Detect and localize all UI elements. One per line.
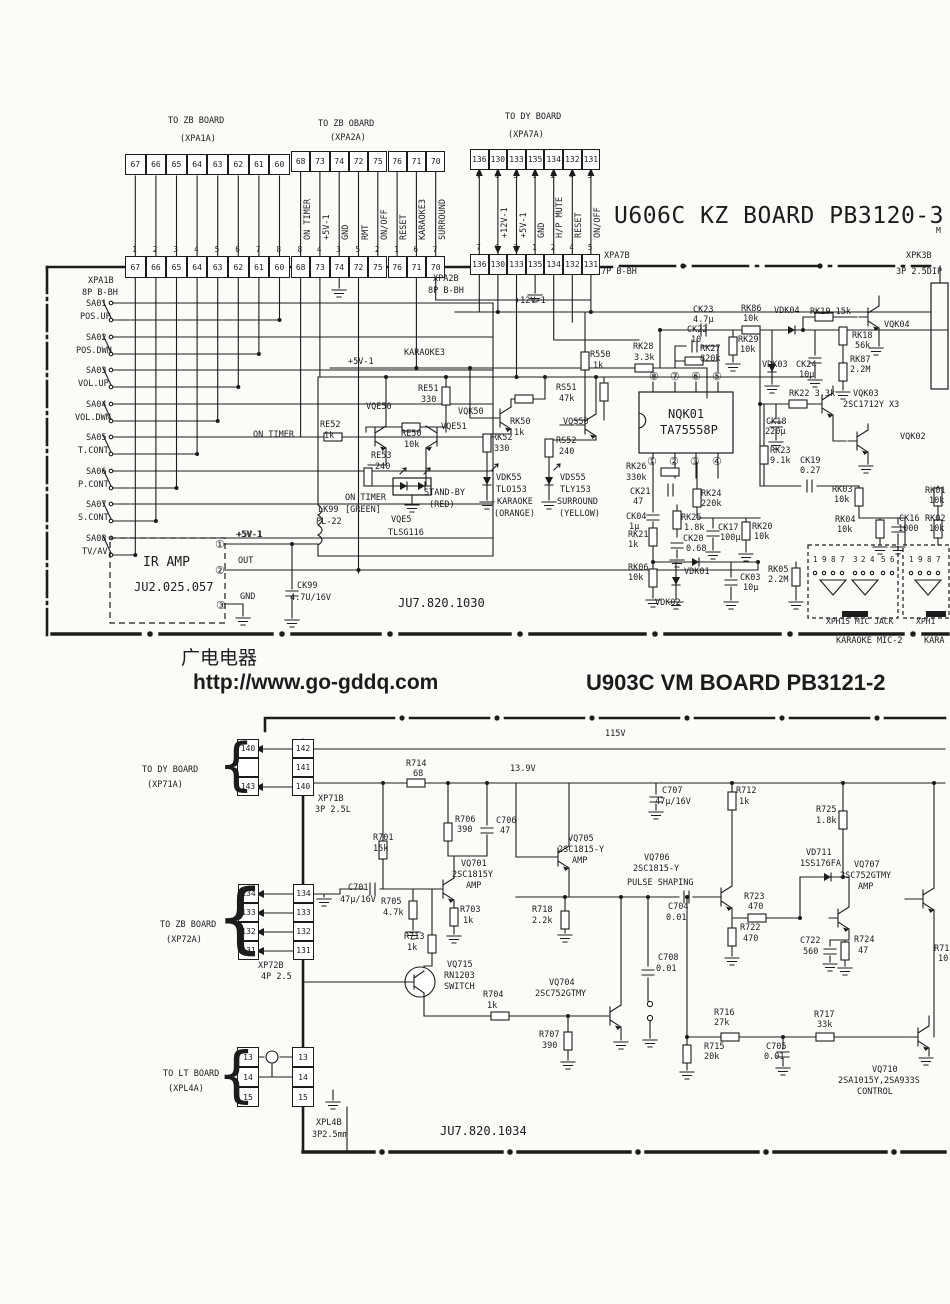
schematic-label: VDK02 — [655, 599, 681, 608]
schematic-label: RK06 — [628, 564, 648, 573]
schematic-label: TO DY BOARD — [142, 766, 198, 775]
schematic-label: 68 — [413, 770, 423, 779]
schematic-label: SA06 — [86, 468, 106, 477]
schematic-label: RS52 — [556, 437, 576, 446]
schematic-label: VDK04 — [774, 307, 800, 316]
connector-pin-cell: 64 — [187, 256, 208, 278]
schematic-label: ON/OFF — [594, 207, 603, 238]
connector-pin-number: 7 — [476, 244, 481, 252]
connector-pin-cell: 132 — [563, 254, 582, 275]
schematic-label: SA04 — [86, 401, 106, 410]
schematic-label: VQE51 — [441, 423, 467, 432]
schematic-label: 1.8k — [816, 817, 836, 826]
schematic-label: R704 — [483, 991, 503, 1000]
connector-pin-number: 7 — [256, 246, 261, 254]
schematic-label: VOL.UP — [78, 380, 109, 389]
schematic-label: 9.1k — [770, 457, 790, 466]
connector-pin-cell: 63 — [207, 154, 228, 175]
connector-pin-cell: 60 — [269, 154, 290, 175]
connector-pin-cell: 66 — [146, 154, 167, 175]
schematic-label: 2SC1712Y X3 — [843, 401, 899, 410]
connector-pin-cell: 15 — [292, 1087, 314, 1107]
schematic-label: ④ — [712, 456, 722, 468]
schematic-label: 47μ/16V — [655, 798, 691, 807]
schematic-label: VQ707 — [854, 861, 880, 870]
schematic-label: R714 — [406, 760, 426, 769]
schematic-label: 10μ — [799, 371, 814, 380]
schematic-label: RK23 — [770, 447, 790, 456]
schematic-label: 8 — [927, 556, 932, 564]
connector-pin-number: 6 — [495, 172, 500, 180]
schematic-label: CK04 — [626, 513, 646, 522]
schematic-label: 10k — [837, 526, 852, 535]
schematic-label: VQE5 — [391, 516, 411, 525]
schematic-label: 4.7U/16V — [290, 594, 331, 603]
schematic-label: JU2.025.057 — [134, 581, 213, 594]
schematic-label: 390 — [542, 1042, 557, 1051]
schematic-label: 3.3k — [634, 354, 654, 363]
schematic-label: 470 — [743, 935, 758, 944]
connector-pin-cell: 60 — [269, 256, 290, 278]
connector-pin-cell: 71 — [407, 151, 426, 172]
schematic-label: CK17 — [718, 524, 738, 533]
schematic-label: XPH1 — [916, 618, 935, 626]
connector-pin-number: 1 — [394, 246, 399, 254]
schematic-label: 330 — [421, 396, 436, 405]
connector-pin-number: 2 — [375, 246, 380, 254]
schematic-label: RE52 — [320, 421, 340, 430]
schematic-label: RK26 — [626, 463, 646, 472]
schematic-label: XPH15 MIC JACK — [826, 618, 893, 626]
schematic-label: VQ701 — [461, 860, 487, 869]
schematic-label: 7P B-BH — [601, 268, 637, 277]
schematic-label: VDS55 — [560, 474, 586, 483]
connector-pin-number: 5 — [215, 246, 220, 254]
connector-pin-cell: 72 — [349, 256, 368, 278]
connector-pin-cell: 131 — [582, 149, 601, 170]
schematic-label: R71 — [934, 945, 949, 954]
schematic-label: (XPA7A) — [508, 131, 544, 140]
schematic-label: RK19 15k — [810, 308, 851, 317]
schematic-label: VDK55 — [496, 474, 522, 483]
schematic-label: 7 — [840, 556, 845, 564]
schematic-label: GND — [538, 223, 547, 238]
schematic-label: CK21 — [630, 488, 650, 497]
schematic-label: R715 — [704, 1043, 724, 1052]
connector-pin-number: 2 — [551, 244, 556, 252]
schematic-label: GND — [342, 225, 351, 240]
schematic-label: RK01 — [925, 487, 945, 496]
schematic-label: 220k — [701, 500, 721, 509]
schematic-label: 220μ — [765, 428, 785, 437]
schematic-label: R725 — [816, 806, 836, 815]
schematic-wires — [0, 0, 950, 1304]
schematic-label: ON TIMER — [345, 494, 386, 503]
schematic-label: (XPA2A) — [330, 134, 366, 143]
schematic-label: 47 — [500, 827, 510, 836]
schematic-label: 470 — [748, 903, 763, 912]
schematic-label: 0.27 — [800, 467, 820, 476]
schematic-label: RS51 — [556, 384, 576, 393]
schematic-label: 15k — [373, 845, 388, 854]
connector-pin-cell: 72 — [349, 151, 368, 172]
schematic-label: R550 — [590, 351, 610, 360]
schematic-label: 1k — [628, 541, 638, 550]
schematic-label: 2.2M — [768, 576, 788, 585]
connector-pin-cell: 64 — [187, 154, 208, 175]
schematic-label: 8P B-BH — [428, 287, 464, 296]
schematic-label: TO DY BOARD — [505, 113, 561, 122]
connector-pin-number: 8 — [298, 246, 303, 254]
schematic-label: 240 — [375, 463, 390, 472]
schematic-label: 7 — [936, 556, 941, 564]
schematic-label: LK99 — [318, 506, 338, 515]
schematic-label: R716 — [714, 1009, 734, 1018]
schematic-label: VQE50 — [366, 403, 392, 412]
schematic-label: 100μ — [720, 534, 740, 543]
schematic-label: C701 — [348, 884, 368, 893]
schematic-label: RK52 — [492, 434, 512, 443]
schematic-label: 330k — [626, 474, 646, 483]
schematic-label: C708 — [658, 954, 678, 963]
schematic-label: 10 — [938, 955, 948, 964]
schematic-label: ⑧ — [649, 371, 659, 383]
schematic-label: S.CONT — [78, 514, 109, 523]
connector-pin-cell: 74 — [330, 151, 349, 172]
schematic-label: VDK03 — [762, 361, 788, 370]
schematic-label: 1k — [593, 362, 603, 371]
schematic-label: SURROUND — [557, 498, 598, 507]
schematic-label: R723 — [744, 893, 764, 902]
connector-pin-number: 1 — [132, 246, 137, 254]
connector-pin-cell: 134 — [544, 254, 563, 275]
schematic-label: ③ — [216, 600, 226, 612]
connector-pin-cell: 68 — [291, 256, 310, 278]
schematic-label: 10k — [929, 525, 944, 534]
schematic-label: RK86 — [741, 305, 761, 314]
schematic-label: (XPL4A) — [168, 1085, 204, 1094]
connector-pin-cell: 63 — [207, 256, 228, 278]
schematic-label: TLO153 — [496, 486, 527, 495]
schematic-label: RK02 — [925, 515, 945, 524]
schematic-label: TO LT BOARD — [163, 1070, 219, 1079]
connector-pin-cell: 62 — [228, 256, 249, 278]
schematic-label: R718 — [532, 906, 552, 915]
schematic-label: RK04 — [835, 516, 855, 525]
schematic-label: +5V-1 — [520, 212, 529, 238]
schematic-label: 10k — [743, 315, 758, 324]
connector-pin-cell: 73 — [310, 151, 329, 172]
schematic-label: XPL4B — [316, 1119, 342, 1128]
schematic-label: GND — [240, 593, 255, 602]
schematic-label: 1k — [739, 798, 749, 807]
connector-pin-number: 5 — [588, 172, 593, 180]
schematic-label: KARAOKE3 — [419, 199, 428, 240]
schematic-label: RK20 — [752, 523, 772, 532]
connector-pin-cell: 67 — [125, 256, 146, 278]
schematic-label: TA75558P — [660, 424, 718, 437]
schematic-label: NQK01 — [668, 408, 704, 421]
connector-pin-number: 3 — [336, 246, 341, 254]
connector-pin-cell: 134 — [544, 149, 563, 170]
connector-pin-cell: 141 — [292, 758, 314, 777]
schematic-label: VD711 — [806, 849, 832, 858]
schematic-label: CK24 — [796, 361, 816, 370]
schematic-label: +5V-1 — [323, 214, 332, 240]
connector-pin-cell: 134 — [293, 884, 314, 903]
schematic-label: ① — [647, 456, 657, 468]
schematic-label: 330 — [494, 445, 509, 454]
schematic-label: TO ZB BOARD — [160, 921, 216, 930]
schematic-label: 47 — [858, 947, 868, 956]
connector-pin-cell: 13 — [292, 1047, 314, 1067]
schematic-label: R701 — [373, 834, 393, 843]
schematic-label: 1 — [813, 556, 818, 564]
schematic-label: 9 — [822, 556, 827, 564]
schematic-label: AMP — [572, 857, 587, 866]
schematic-label: SWITCH — [444, 983, 475, 992]
connector-pin-number: 2 — [153, 246, 158, 254]
schematic-label: ② — [215, 565, 225, 577]
schematic-label: 8P B-BH — [82, 289, 118, 298]
connector-pin-cell: 67 — [125, 154, 146, 175]
schematic-label: TO ZB BOARD — [168, 117, 224, 126]
schematic-label: 33k — [817, 1021, 832, 1030]
schematic-label: (XPA1A) — [180, 135, 216, 144]
schematic-label: SA03 — [86, 367, 106, 376]
schematic-label: R703 — [460, 906, 480, 915]
schematic-label: CK19 — [800, 457, 820, 466]
connector-pin-cell: 140 — [292, 777, 314, 796]
schematic-label: 2 — [861, 556, 866, 564]
schematic-label: 8 — [831, 556, 836, 564]
schematic-label: XPA1B — [88, 277, 114, 286]
schematic-label: P.CONT — [78, 481, 109, 490]
connector-pin-number: 1 — [532, 172, 537, 180]
schematic-label: { — [217, 879, 263, 960]
schematic-label: ⑦ — [670, 371, 680, 383]
schematic-label: H/P MUTE — [556, 197, 565, 238]
connector-pin-cell: 70 — [426, 151, 445, 172]
schematic-label: 5 — [881, 556, 886, 564]
schematic-label: VQ704 — [549, 979, 575, 988]
schematic-label: XPA2B — [433, 275, 459, 284]
connector-pin-cell: 136 — [470, 254, 489, 275]
schematic-label: PULSE SHAPING — [627, 879, 694, 888]
schematic-label: KARA — [924, 637, 944, 646]
connector-pin-cell: 71 — [407, 256, 426, 278]
schematic-label: VOL.DWN — [75, 414, 111, 423]
schematic-label: CK22 — [687, 326, 707, 335]
schematic-label: 2SC1815Y — [452, 871, 493, 880]
connector-pin-cell: 130 — [489, 149, 508, 170]
schematic-label: 10k — [628, 574, 643, 583]
schematic-label: 3P 2.5DIP — [896, 268, 942, 277]
connector-pin-number: 6 — [235, 246, 240, 254]
schematic-label: 3P 2.5L — [315, 806, 351, 815]
schematic-label: 1k — [324, 432, 334, 441]
schematic-label: VQ706 — [644, 854, 670, 863]
schematic-label: (XP71A) — [147, 781, 183, 790]
schematic-label: XP71B — [318, 795, 344, 804]
schematic-label: ③ — [690, 456, 700, 468]
connector-pin-number: 4 — [569, 244, 574, 252]
schematic-label: 3P2.5mm — [312, 1131, 348, 1140]
schematic-label: RK24 — [701, 490, 721, 499]
schematic-label: 4.7μ — [693, 316, 713, 325]
connector-pin-number: 2 — [551, 172, 556, 180]
schematic-label: RN1203 — [444, 972, 475, 981]
schematic-label: XPK3B — [906, 252, 932, 261]
schematic-label: KARAOKE MIC-2 — [836, 637, 903, 646]
schematic-label: 20k — [704, 1053, 719, 1062]
connector-pin-cell: 135 — [526, 149, 545, 170]
schematic-label: 10k — [929, 497, 944, 506]
schematic-label: 1k — [463, 917, 473, 926]
schematic-label: (YELLOW) — [559, 510, 600, 519]
schematic-label: ② — [669, 456, 679, 468]
schematic-label: CK16 — [899, 515, 919, 524]
schematic-label: 820k — [700, 355, 720, 364]
schematic-label: 47μ/16V — [340, 896, 376, 905]
schematic-label: 3 — [853, 556, 858, 564]
schematic-label: +5V-1 — [348, 358, 374, 367]
schematic-label: 1k — [514, 429, 524, 438]
schematic-label: TLY153 — [560, 486, 591, 495]
schematic-label: R717 — [814, 1011, 834, 1020]
board1-title: U606C KZ BOARD PB3120-3 — [614, 203, 944, 229]
schematic-label: 0.01 — [764, 1053, 784, 1062]
board1-title-suffix: M — [936, 226, 941, 235]
schematic-label: (RED) — [429, 501, 455, 510]
schematic-label: AMP — [858, 883, 873, 892]
schematic-label: VQ715 — [447, 961, 473, 970]
schematic-label: RK03 — [832, 486, 852, 495]
schematic-label: CK99 — [297, 582, 317, 591]
schematic-label: +5V-1 — [237, 531, 263, 540]
connector-pin-cell: 65 — [166, 154, 187, 175]
schematic-label: 2.2M — [850, 366, 870, 375]
connector-pin-cell: 75 — [368, 256, 387, 278]
connector-pin-number: 4 — [317, 246, 322, 254]
schematic-label: SA07 — [86, 501, 106, 510]
schematic-label: 2.2k — [532, 917, 552, 926]
connector-pin-cell: 62 — [228, 154, 249, 175]
schematic-label: ① — [215, 539, 225, 551]
schematic-label: 27k — [714, 1019, 729, 1028]
connector-pin-cell: 132 — [563, 149, 582, 170]
connector-pin-number: 5 — [588, 244, 593, 252]
connector-pin-number: 6 — [413, 246, 418, 254]
schematic-label: 2SC1815-Y — [558, 846, 604, 855]
schematic-label: { — [218, 1043, 255, 1107]
schematic-label: VQK04 — [884, 321, 910, 330]
connector-pin-cell: 136 — [470, 149, 489, 170]
schematic-label: { — [219, 736, 253, 796]
schematic-label: RK05 — [768, 566, 788, 575]
schematic-label: 47 — [633, 498, 643, 507]
schematic-label: 56k — [855, 342, 870, 351]
schematic-label: 10k — [404, 441, 419, 450]
schematic-label: JU7.820.1034 — [440, 1125, 527, 1138]
connector-pin-cell: 75 — [368, 151, 387, 172]
connector-pin-number: 3 — [514, 172, 519, 180]
schematic-label: RK87 — [850, 356, 870, 365]
schematic-label: T.CONT — [78, 447, 109, 456]
schematic-label: RK28 — [633, 343, 653, 352]
schematic-page: U606C KZ BOARD PB3120-3 M 广电电器 http://ww… — [0, 0, 950, 1304]
schematic-label: CONTROL — [857, 1088, 893, 1097]
schematic-label: IR AMP — [143, 556, 190, 570]
schematic-label: 1k — [487, 1002, 497, 1011]
schematic-label: 390 — [457, 826, 472, 835]
schematic-label: TO ZB OBARD — [318, 120, 374, 129]
schematic-label: [GREEN] — [345, 506, 381, 515]
schematic-label: C705 — [766, 1043, 786, 1052]
connector-pin-cell: 14 — [292, 1067, 314, 1087]
schematic-label: ⑥ — [691, 371, 701, 383]
connector-pin-cell: 61 — [249, 256, 270, 278]
schematic-label: RE51 — [418, 385, 438, 394]
schematic-label: 13.9V — [510, 765, 536, 774]
watermark-url: http://www.go-gddq.com — [193, 671, 438, 695]
schematic-label: VQK02 — [900, 433, 926, 442]
schematic-label: 10μ — [743, 584, 758, 593]
schematic-label: +12V-1 — [515, 297, 546, 306]
schematic-label: KARAOKE3 — [404, 349, 445, 358]
connector-pin-cell: 68 — [291, 151, 310, 172]
schematic-label: VQK03 — [853, 390, 879, 399]
connector-pin-cell: 73 — [310, 256, 329, 278]
connector-pin-cell: 132 — [293, 922, 314, 941]
schematic-label: 4P 2.5 — [261, 973, 292, 982]
schematic-label: OUT — [238, 557, 253, 566]
schematic-label: R705 — [381, 898, 401, 907]
schematic-label: VQS50 — [563, 418, 589, 427]
schematic-label: R712 — [736, 787, 756, 796]
schematic-label: RK25 — [681, 514, 701, 523]
schematic-label: 240 — [559, 448, 574, 457]
schematic-label: KARAOKE — [497, 498, 533, 507]
schematic-label: C706 — [496, 817, 516, 826]
connector-pin-cell: 65 — [166, 256, 187, 278]
schematic-label: C722 — [800, 937, 820, 946]
schematic-label: C704 — [668, 903, 688, 912]
connector-pin-cell: 130 — [489, 254, 508, 275]
schematic-label: 2SC752GTMY — [840, 872, 891, 881]
connector-pin-cell: 61 — [249, 154, 270, 175]
connector-pin-cell: 131 — [582, 254, 601, 275]
schematic-label: VQ710 — [872, 1066, 898, 1075]
connector-pin-cell: 76 — [388, 151, 407, 172]
schematic-label: 2SC752GTMY — [535, 990, 586, 999]
schematic-label: SA05 — [86, 434, 106, 443]
schematic-label: RE53 — [371, 452, 391, 461]
schematic-label: XPA7B — [604, 252, 630, 261]
schematic-label: 1 — [909, 556, 914, 564]
schematic-label: 0.01 — [656, 965, 676, 974]
schematic-label: ON TIMER — [304, 199, 313, 240]
schematic-label: TLSG116 — [388, 529, 424, 538]
connector-pin-cell: 133 — [507, 254, 526, 275]
schematic-label: 4 — [870, 556, 875, 564]
schematic-label: VQ705 — [568, 835, 594, 844]
connector-pin-cell: 133 — [507, 149, 526, 170]
schematic-label: 560 — [803, 948, 818, 957]
schematic-label: SA08 — [86, 535, 106, 544]
schematic-label: SA01 — [86, 300, 106, 309]
connector-pin-cell: 142 — [292, 739, 314, 758]
